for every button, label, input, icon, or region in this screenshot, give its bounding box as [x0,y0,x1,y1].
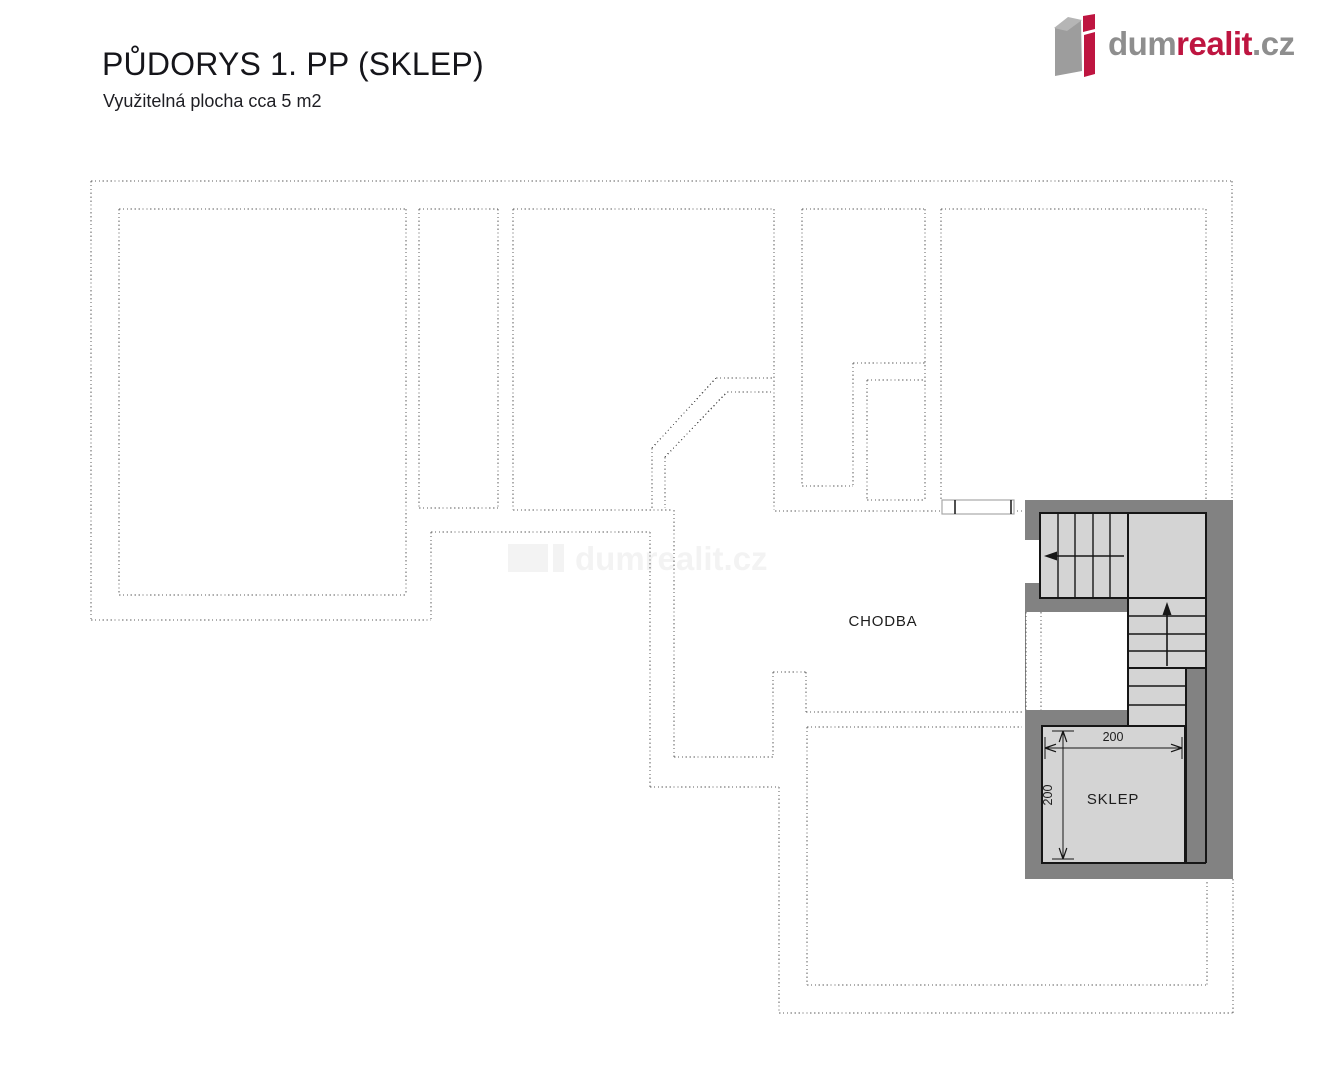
watermark-text: dumrealit.cz [575,540,768,577]
dimension-label: 200 [1103,730,1124,744]
stair-area [1128,513,1206,598]
floorplan-page: PŮDORYS 1. PP (SKLEP) Využitelná plocha … [0,0,1322,1080]
wall-opening [1026,612,1128,710]
door-symbol [942,500,1014,514]
dotted-wall-line [652,378,716,448]
room-label: SKLEP [1087,791,1139,808]
watermark-icon [508,544,548,572]
dimension-label: 200 [1041,785,1055,806]
room-label: CHODBA [849,613,918,630]
stair-area [1128,668,1186,726]
watermark-icon [553,544,564,572]
floor-plan-drawing: dumrealit.cz200200CHODBASKLEP [0,0,1322,1080]
wall-opening [1025,540,1040,583]
